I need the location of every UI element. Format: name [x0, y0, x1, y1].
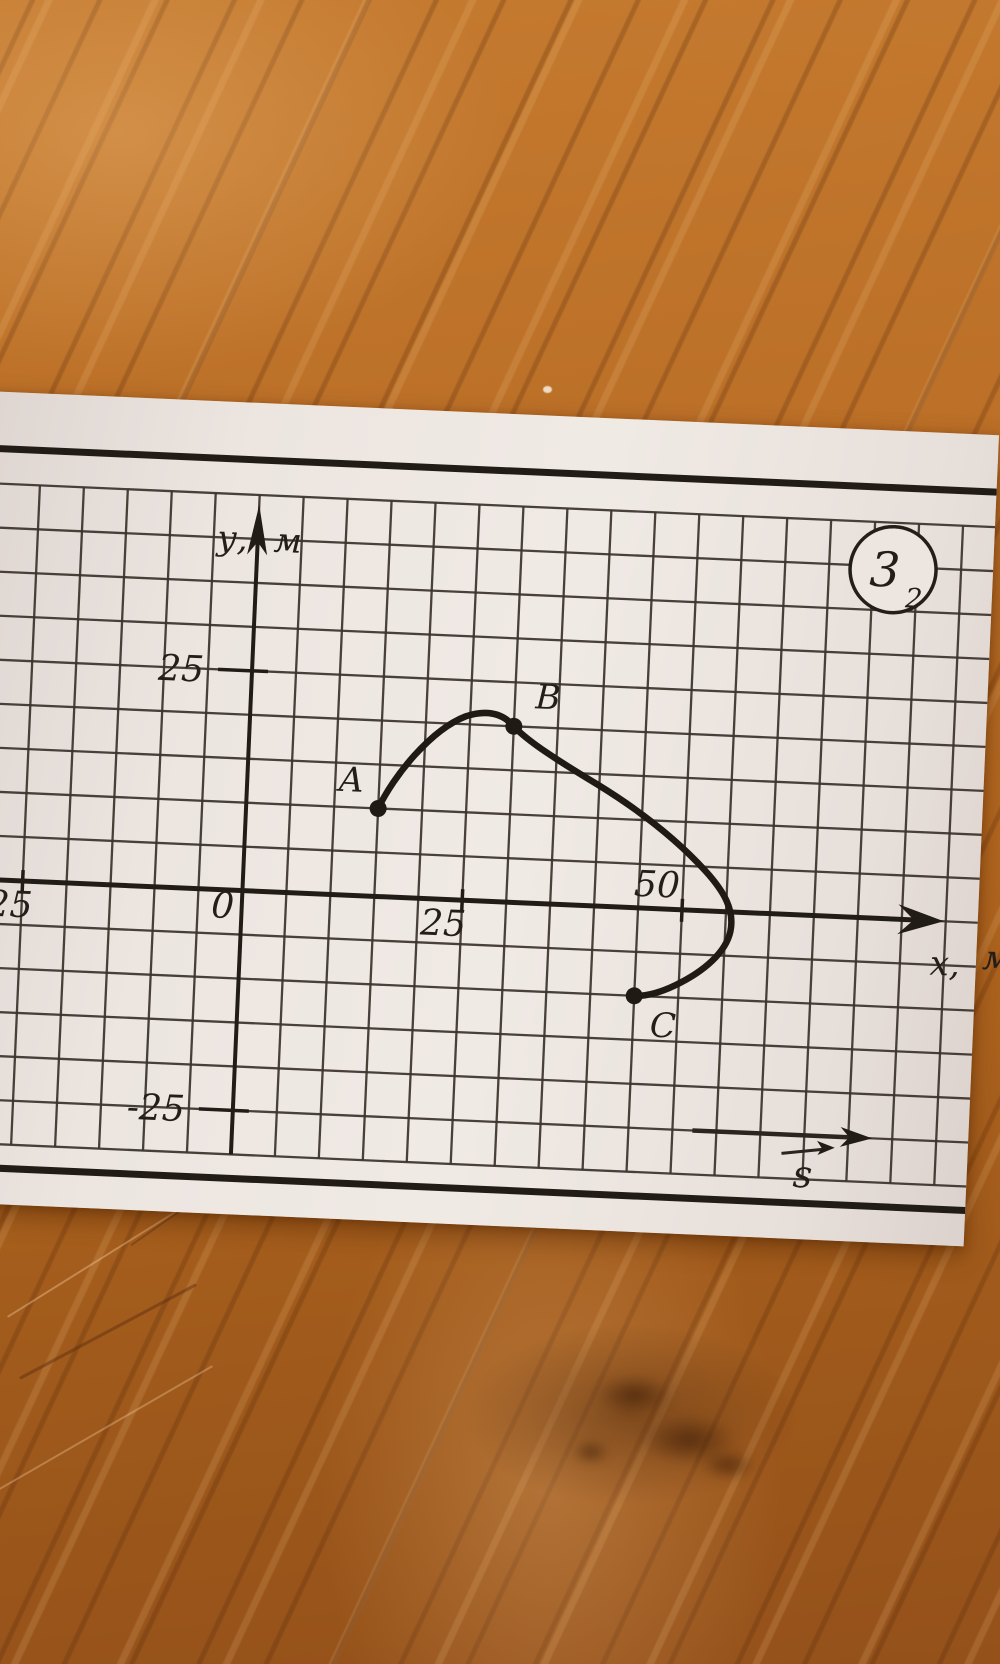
origin-label: 0 — [210, 885, 235, 927]
grid-line — [0, 614, 989, 659]
y-axis-label: у, — [214, 518, 248, 559]
dust-speck — [543, 386, 552, 393]
photo-scene: 25 -25 -25 0 25 50 у, м х, м s ABC 3 2 — [0, 0, 1000, 1664]
x-tick-label-minus25: -25 — [0, 883, 33, 926]
wood-knot — [572, 1440, 610, 1464]
grid-line — [0, 965, 974, 1010]
grid-line — [802, 520, 831, 1179]
y-axis-line — [231, 531, 258, 1154]
grid-line — [0, 1009, 972, 1054]
grid-line — [55, 487, 84, 1146]
grid-line — [0, 658, 987, 703]
grid-line — [451, 505, 480, 1164]
grid-line — [275, 497, 304, 1156]
grid-line — [0, 790, 982, 835]
grid-line — [846, 522, 875, 1181]
grid-line — [539, 508, 568, 1167]
grid-line — [934, 526, 963, 1185]
grid-line — [11, 485, 40, 1144]
point-dot-C — [625, 987, 643, 1005]
grid-line — [758, 518, 787, 1177]
y-tick-minus25 — [199, 1109, 249, 1111]
s-vector-label: s — [792, 1152, 813, 1197]
wood-knot — [595, 1375, 673, 1415]
x-tick-label-50: 50 — [633, 864, 681, 907]
y-tick-label-minus25: -25 — [126, 1087, 186, 1130]
grid-line — [495, 507, 524, 1166]
grid-line — [99, 489, 128, 1148]
grid-line — [627, 512, 656, 1171]
grid-lines — [0, 482, 995, 1187]
x-axis-label: х, — [929, 944, 961, 985]
grid-line — [407, 503, 436, 1162]
point-label-B: B — [534, 677, 562, 718]
grid-line — [187, 493, 216, 1152]
y-tick-25 — [218, 669, 268, 671]
grid-line — [0, 702, 985, 747]
grid-line — [0, 570, 991, 615]
badge-number: 3 — [869, 542, 902, 599]
grid-line — [0, 834, 980, 879]
point-label-C: C — [649, 1006, 677, 1047]
grid-line — [583, 510, 612, 1169]
wood-knot — [700, 1450, 756, 1480]
x-tick-50 — [681, 899, 682, 922]
card-figure: 25 -25 -25 0 25 50 у, м х, м s ABC 3 2 — [0, 390, 1000, 1249]
x-tick-label-25: 25 — [418, 902, 467, 945]
grid-line — [714, 516, 743, 1175]
grid-line — [0, 921, 976, 966]
y-axis-unit-label: м — [273, 521, 303, 562]
badge-subscript: 2 — [904, 583, 924, 615]
y-tick-label-25: 25 — [156, 648, 205, 691]
problem-card: 25 -25 -25 0 25 50 у, м х, м s ABC 3 2 — [0, 390, 999, 1246]
grid-line — [143, 491, 172, 1150]
top-frame-line — [0, 447, 997, 492]
grid-line — [319, 499, 348, 1158]
grid-line — [0, 746, 983, 791]
bottom-frame-line — [0, 1165, 965, 1210]
grid-line — [363, 501, 392, 1160]
grid-line — [890, 524, 919, 1183]
x-axis-unit-label: м — [981, 938, 1000, 979]
point-label-A: A — [335, 760, 364, 801]
grid-line — [0, 526, 993, 571]
